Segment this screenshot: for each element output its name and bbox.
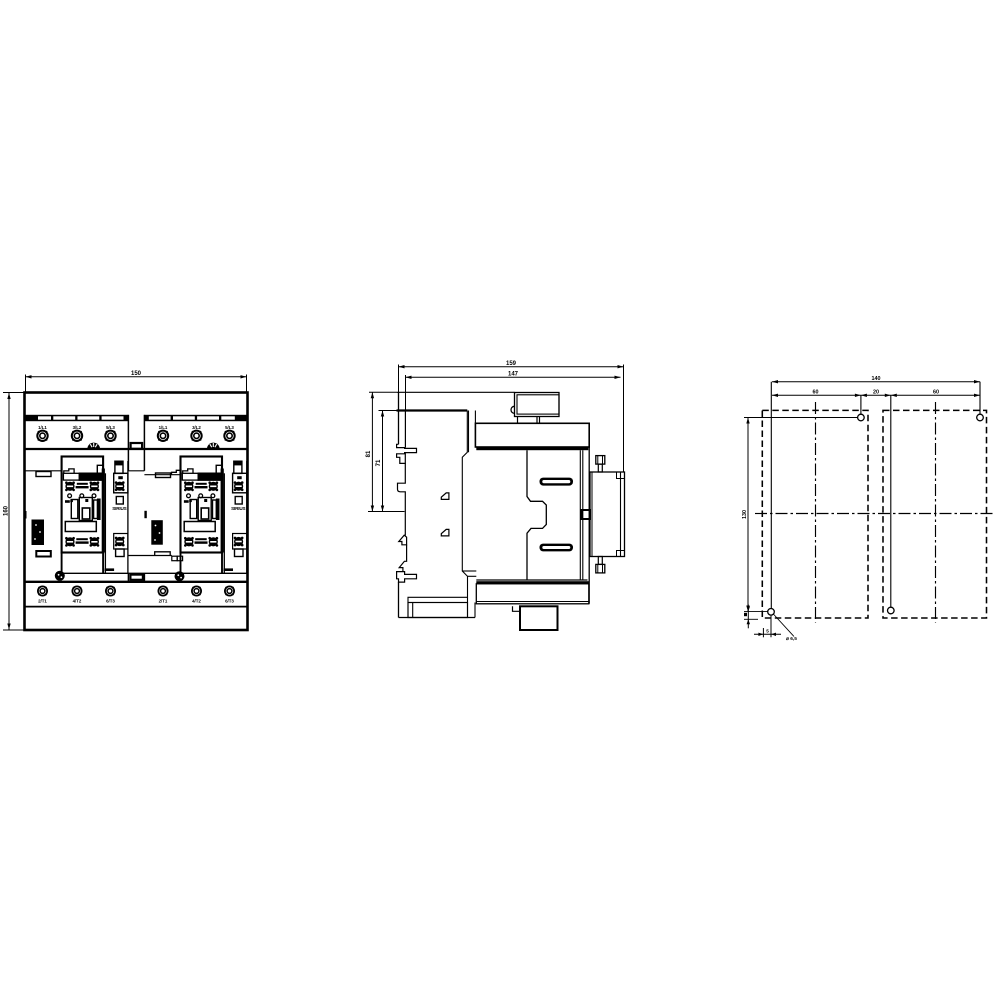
svg-text:140: 140 (872, 376, 881, 382)
svg-text:147: 147 (508, 371, 519, 377)
svg-text:3/L2: 3/L2 (73, 425, 82, 430)
svg-text:60: 60 (813, 389, 819, 395)
svg-text:60: 60 (933, 389, 939, 395)
svg-text:71: 71 (376, 459, 382, 466)
svg-text:3/L2: 3/L2 (192, 425, 201, 430)
svg-text:1/L1: 1/L1 (38, 425, 47, 430)
svg-text:1/L1: 1/L1 (159, 425, 168, 430)
svg-text:160: 160 (4, 505, 10, 516)
svg-text:5: 5 (766, 628, 769, 633)
svg-text:2/T1: 2/T1 (38, 599, 47, 604)
svg-text:5/L3: 5/L3 (106, 425, 115, 430)
svg-text:4/T2: 4/T2 (192, 599, 201, 604)
svg-text:150: 150 (131, 371, 142, 377)
svg-text:2/T1: 2/T1 (159, 599, 168, 604)
svg-text:6/T3: 6/T3 (106, 599, 115, 604)
svg-text:6/T3: 6/T3 (225, 599, 234, 604)
svg-text:159: 159 (506, 361, 517, 367)
svg-text:81: 81 (366, 450, 372, 457)
svg-text:4/T2: 4/T2 (73, 599, 82, 604)
svg-text:130: 130 (742, 510, 748, 519)
svg-text:20: 20 (873, 389, 879, 395)
svg-text:⌀ 6,5: ⌀ 6,5 (786, 636, 797, 642)
svg-text:5/L3: 5/L3 (225, 425, 234, 430)
